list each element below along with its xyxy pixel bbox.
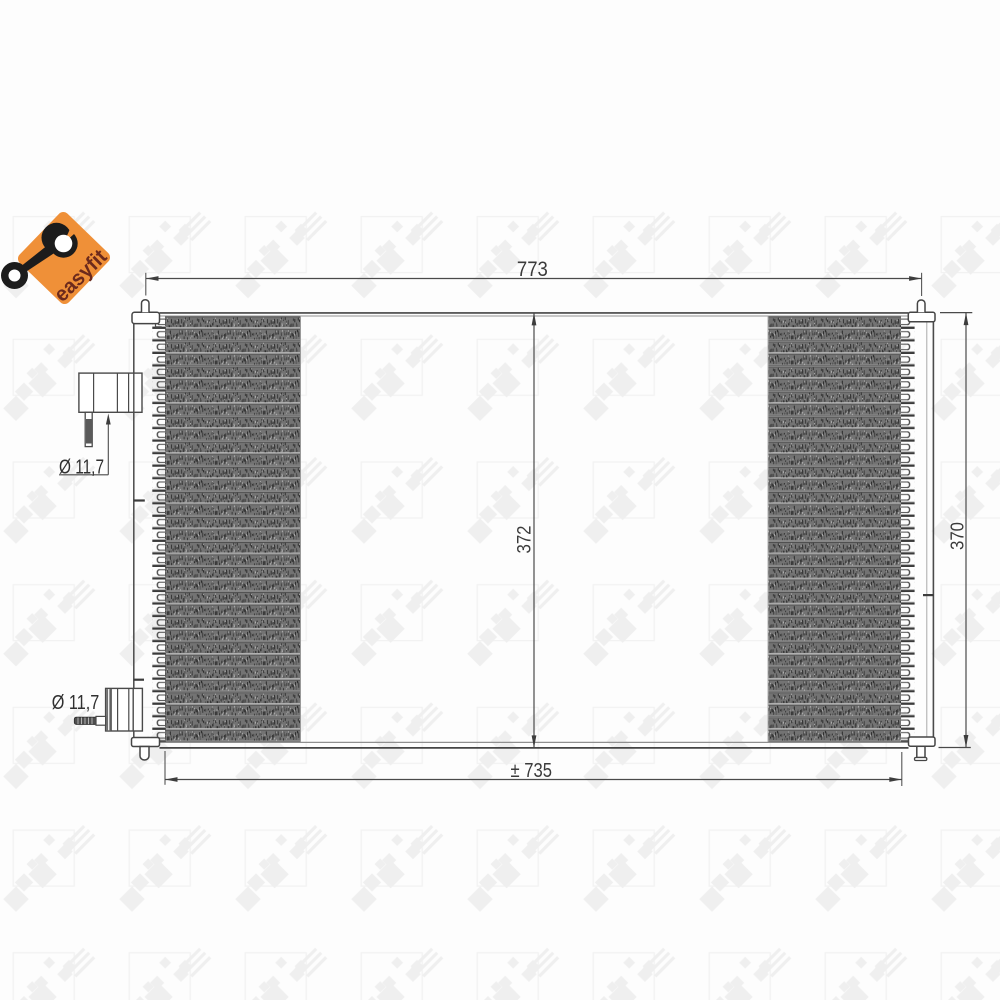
svg-text:773: 773 (517, 258, 548, 281)
svg-text:Ø 11,7: Ø 11,7 (59, 456, 104, 479)
svg-text:370: 370 (947, 522, 968, 550)
svg-text:Ø 11,7: Ø 11,7 (52, 691, 100, 714)
svg-text:372: 372 (514, 526, 536, 554)
svg-text:± 735: ± 735 (511, 759, 553, 782)
